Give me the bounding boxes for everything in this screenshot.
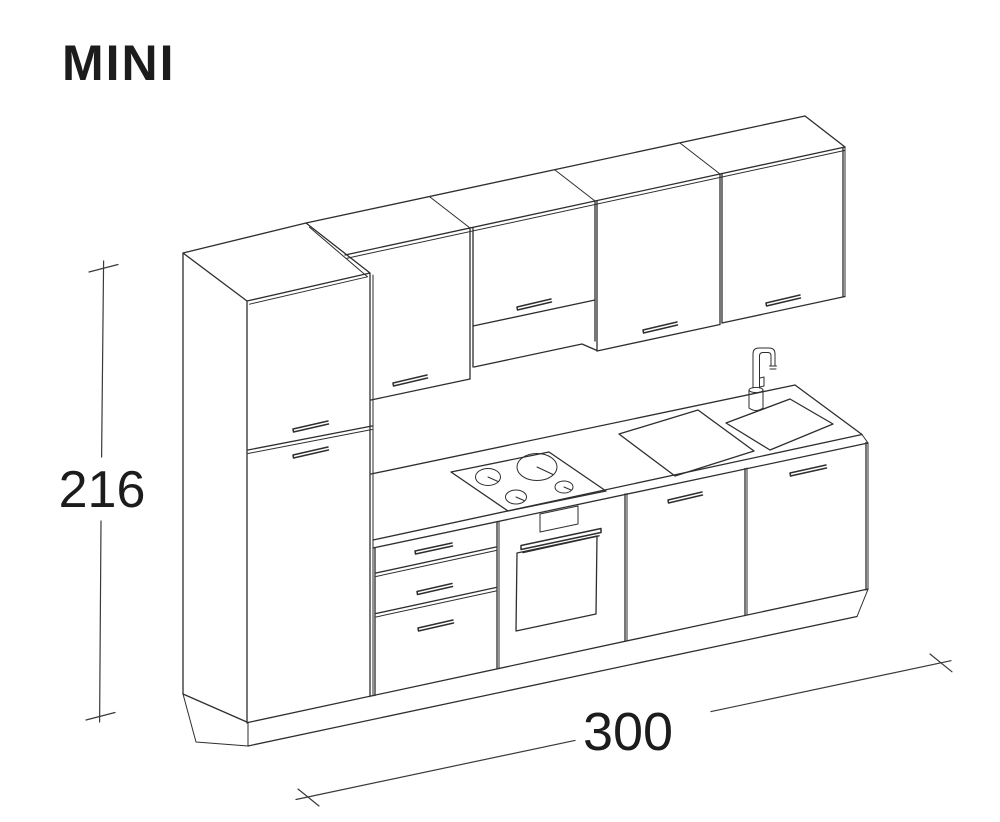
- wall-cabinet-c-handle: [643, 322, 678, 333]
- height-dimension-label: 216: [59, 461, 146, 519]
- wall-cabinet-row: [306, 116, 845, 400]
- burner-front: [506, 490, 527, 504]
- sink-base-door-right: [790, 443, 868, 591]
- width-dim-left-tick: [298, 789, 319, 806]
- kitchen-line-drawing: 216 300 MINI: [0, 0, 1000, 822]
- tall-cabinet-top-face: [183, 223, 370, 301]
- height-dimension: 216: [59, 261, 146, 722]
- tall-cabinet: [183, 223, 373, 723]
- base-door-2-handle: [790, 465, 827, 476]
- page-title: MINI: [62, 35, 176, 91]
- wall-cabinet-a-handle: [393, 375, 428, 386]
- oven-door: [516, 536, 597, 631]
- tall-cabinet-lower-handle: [293, 447, 329, 458]
- burner-right: [555, 481, 573, 493]
- drawer-1-handle: [415, 543, 453, 554]
- faucet-icon: [749, 348, 777, 411]
- width-dim-right-tick: [930, 654, 952, 672]
- top-divider-tick-3: [680, 143, 720, 174]
- top-divider-tick-2: [555, 170, 595, 201]
- tall-cabinet-side-bottom-edge: [183, 694, 248, 723]
- height-dim-bottom-tick: [86, 713, 115, 721]
- drawer-2-handle: [417, 584, 453, 595]
- drawer-unit: [375, 522, 499, 696]
- wall-cabinets-top-face: [306, 116, 845, 258]
- wall-cabinet-b: [473, 201, 597, 367]
- wall-cabinet-a: [371, 228, 470, 400]
- kitchen-diagram: 216 300 MINI: [0, 0, 1000, 822]
- top-divider-tick-1: [430, 197, 470, 228]
- countertop: [371, 385, 868, 548]
- base-door-1-handle: [668, 492, 703, 503]
- width-dimension-label: 300: [583, 702, 673, 762]
- burner-large: [517, 454, 557, 481]
- oven-control-panel: [540, 506, 578, 532]
- tall-cabinet-upper-handle: [293, 421, 329, 432]
- tall-cabinet-door-divider: [248, 426, 372, 450]
- oven: [516, 494, 627, 642]
- wall-cabinet-b-handle: [517, 299, 552, 310]
- oven-handle: [521, 529, 601, 553]
- plinth: [183, 589, 868, 746]
- cooktop: [451, 452, 606, 511]
- burner-left: [476, 469, 501, 486]
- sink-base-door-left: [668, 468, 747, 616]
- wall-cabinet-d-handle: [766, 295, 801, 306]
- width-dimension: 300: [296, 654, 952, 806]
- drawer-3-handle: [418, 620, 454, 631]
